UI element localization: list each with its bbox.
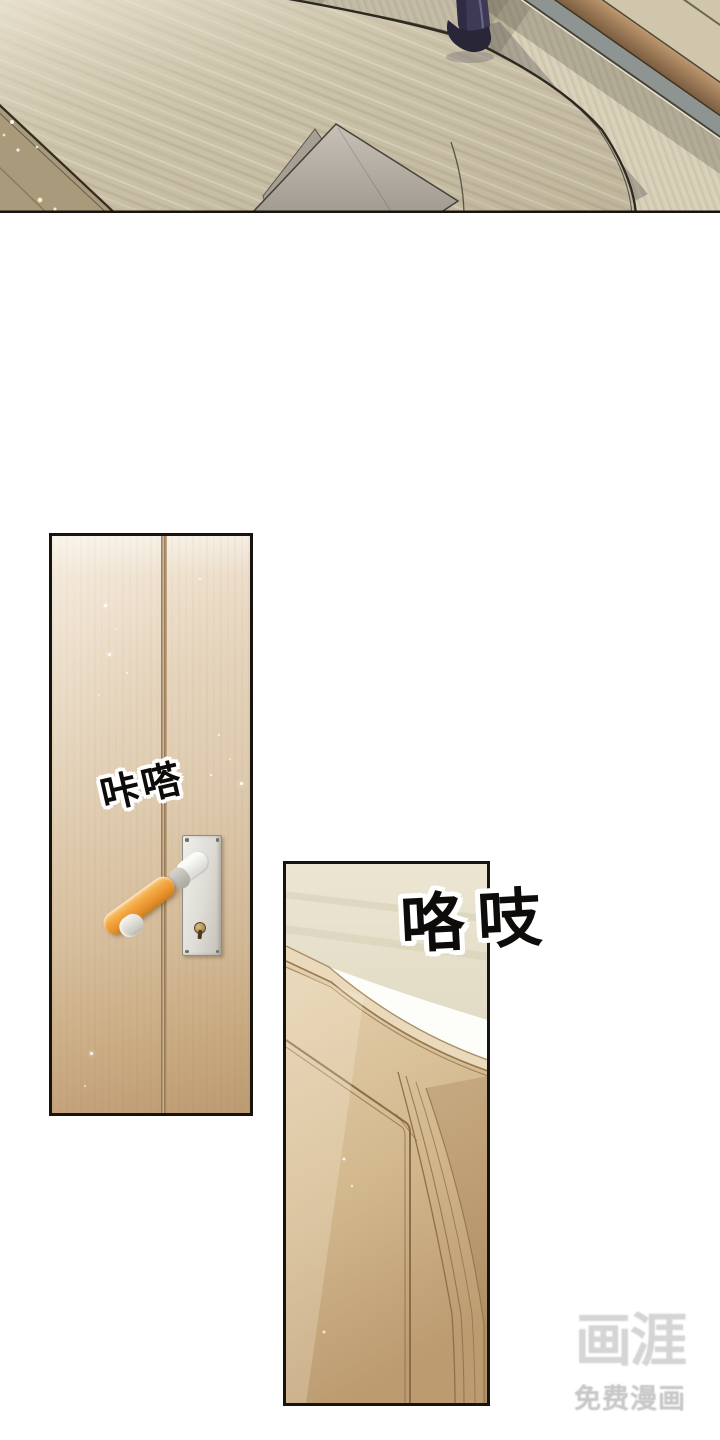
comic-page: 咔嗒: [0, 0, 720, 1440]
panel-border-bottom: [0, 211, 720, 214]
door-seam: [161, 536, 167, 1113]
door-sheen: [52, 536, 250, 1113]
screw: [216, 950, 220, 954]
floor-scene-art: [0, 0, 720, 213]
screw: [185, 838, 189, 842]
sfx-door-creak: 咯吱: [399, 886, 556, 958]
screw: [185, 950, 189, 954]
keyhole: [193, 922, 207, 941]
keyhole-slot: [197, 930, 202, 939]
watermark: 画涯 免费漫画: [560, 1310, 700, 1416]
scene-floor-overhead: [0, 0, 720, 213]
panel-closed-door: [49, 533, 253, 1116]
screw: [216, 838, 220, 842]
watermark-logo: 画涯: [560, 1310, 700, 1373]
watermark-tagline: 免费漫画: [560, 1377, 700, 1416]
